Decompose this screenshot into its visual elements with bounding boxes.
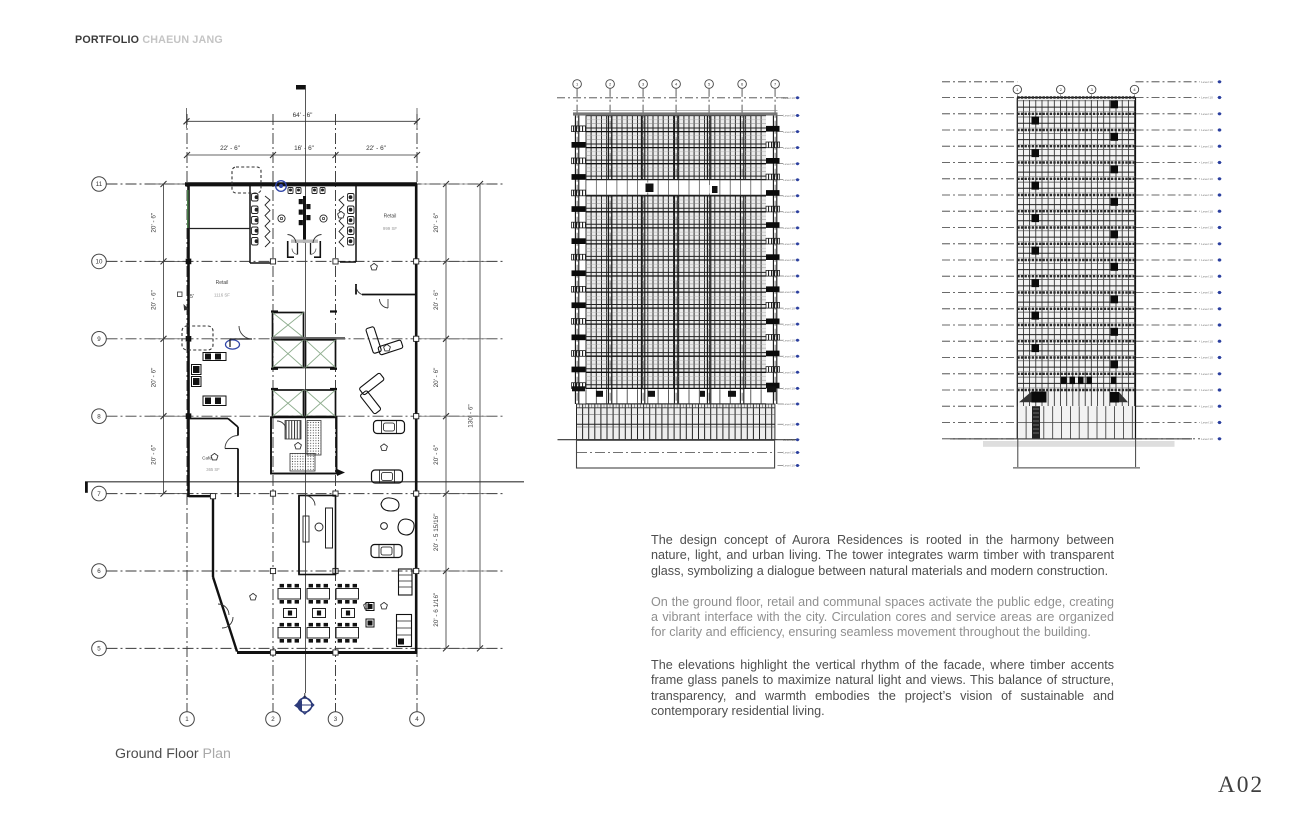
svg-text:Level 10: Level 10 [783,114,795,118]
svg-text:Level 10: Level 10 [783,322,795,326]
svg-text:20' - 6": 20' - 6" [433,290,440,310]
svg-text:20' - 6": 20' - 6" [433,368,440,388]
svg-text:11: 11 [96,181,103,188]
svg-text:Level 10: Level 10 [1201,226,1213,230]
svg-text:1116 SF: 1116 SF [214,293,230,298]
svg-text:Level 10: Level 10 [1201,323,1213,327]
svg-text:Level 10: Level 10 [783,194,795,198]
svg-text:Level 10: Level 10 [783,338,795,342]
svg-text:1: 1 [185,716,189,723]
svg-text:16' - 6": 16' - 6" [294,145,314,152]
svg-text:9: 9 [97,336,101,343]
svg-text:Level 10: Level 10 [1201,161,1213,165]
svg-text:Level 10: Level 10 [1201,112,1213,116]
svg-text:Level 10: Level 10 [1201,128,1213,132]
svg-text:22' - 6": 22' - 6" [220,145,240,152]
svg-text:365 SF: 365 SF [206,467,220,472]
svg-text:Level 10: Level 10 [783,438,795,442]
svg-text:Level 10: Level 10 [783,422,795,426]
svg-text:130' - 6": 130' - 6" [468,404,475,427]
svg-text:Retail: Retail [216,280,229,286]
svg-text:Level 10: Level 10 [1201,339,1213,343]
svg-text:Level 10: Level 10 [1201,96,1213,100]
svg-text:20' - 6": 20' - 6" [433,445,440,465]
svg-text:Level 10: Level 10 [1201,437,1213,441]
svg-text:Level 10: Level 10 [783,451,795,455]
svg-text:Retail: Retail [384,214,397,220]
svg-text:5': 5' [190,294,194,300]
svg-text:64' - 6": 64' - 6" [293,112,313,119]
svg-text:Level 10: Level 10 [1201,242,1213,246]
svg-text:2: 2 [271,716,275,723]
svg-text:20' - 5 15/16": 20' - 5 15/16" [433,513,440,551]
svg-text:Level 10: Level 10 [1201,177,1213,181]
svg-text:20' - 6": 20' - 6" [151,213,158,233]
svg-text:Level 10: Level 10 [783,371,795,375]
svg-text:Level 10: Level 10 [1201,388,1213,392]
svg-text:Level 10: Level 10 [783,178,795,182]
svg-text:Level 10: Level 10 [1201,404,1213,408]
svg-text:3: 3 [334,716,338,723]
svg-text:Level 10: Level 10 [783,96,795,100]
svg-text:Level 10: Level 10 [783,354,795,358]
svg-text:20' - 6": 20' - 6" [151,368,158,388]
svg-text:Level 10: Level 10 [783,210,795,214]
svg-text:999 SF: 999 SF [383,226,397,231]
svg-text:Level 10: Level 10 [783,130,795,134]
svg-text:Level 10: Level 10 [1201,258,1213,262]
svg-text:Level 10: Level 10 [1201,307,1213,311]
svg-text:Level 10: Level 10 [1201,291,1213,295]
svg-text:Level 10: Level 10 [783,226,795,230]
svg-text:20' - 6 1/16": 20' - 6 1/16" [433,593,440,627]
svg-text:Level 10: Level 10 [783,402,795,406]
svg-text:Level 10: Level 10 [783,290,795,294]
svg-text:Level 10: Level 10 [783,274,795,278]
svg-text:8: 8 [97,413,101,420]
svg-text:Level 10: Level 10 [783,464,795,468]
svg-text:Level 10: Level 10 [1201,372,1213,376]
svg-text:4: 4 [415,716,419,723]
svg-text:Level 10: Level 10 [783,242,795,246]
svg-text:Level 10: Level 10 [1201,193,1213,197]
svg-text:Level 10: Level 10 [783,146,795,150]
svg-text:20' - 6": 20' - 6" [433,213,440,233]
svg-text:20' - 6": 20' - 6" [151,290,158,310]
svg-text:20' - 6": 20' - 6" [151,445,158,465]
svg-text:Level 10: Level 10 [783,162,795,166]
svg-text:Level 10: Level 10 [1201,274,1213,278]
svg-text:5: 5 [97,646,101,653]
svg-text:10: 10 [96,259,103,266]
svg-text:Level 10: Level 10 [783,387,795,391]
svg-text:Level 10: Level 10 [1201,80,1213,84]
svg-text:Level 10: Level 10 [1201,209,1213,213]
svg-text:7: 7 [97,491,101,498]
svg-text:Level 10: Level 10 [783,258,795,262]
svg-text:22' - 6": 22' - 6" [366,145,386,152]
svg-text:6: 6 [97,568,101,575]
svg-text:Level 10: Level 10 [1201,144,1213,148]
svg-text:Level 10: Level 10 [1201,421,1213,425]
svg-text:Level 10: Level 10 [1201,356,1213,360]
svg-text:Level 10: Level 10 [783,306,795,310]
